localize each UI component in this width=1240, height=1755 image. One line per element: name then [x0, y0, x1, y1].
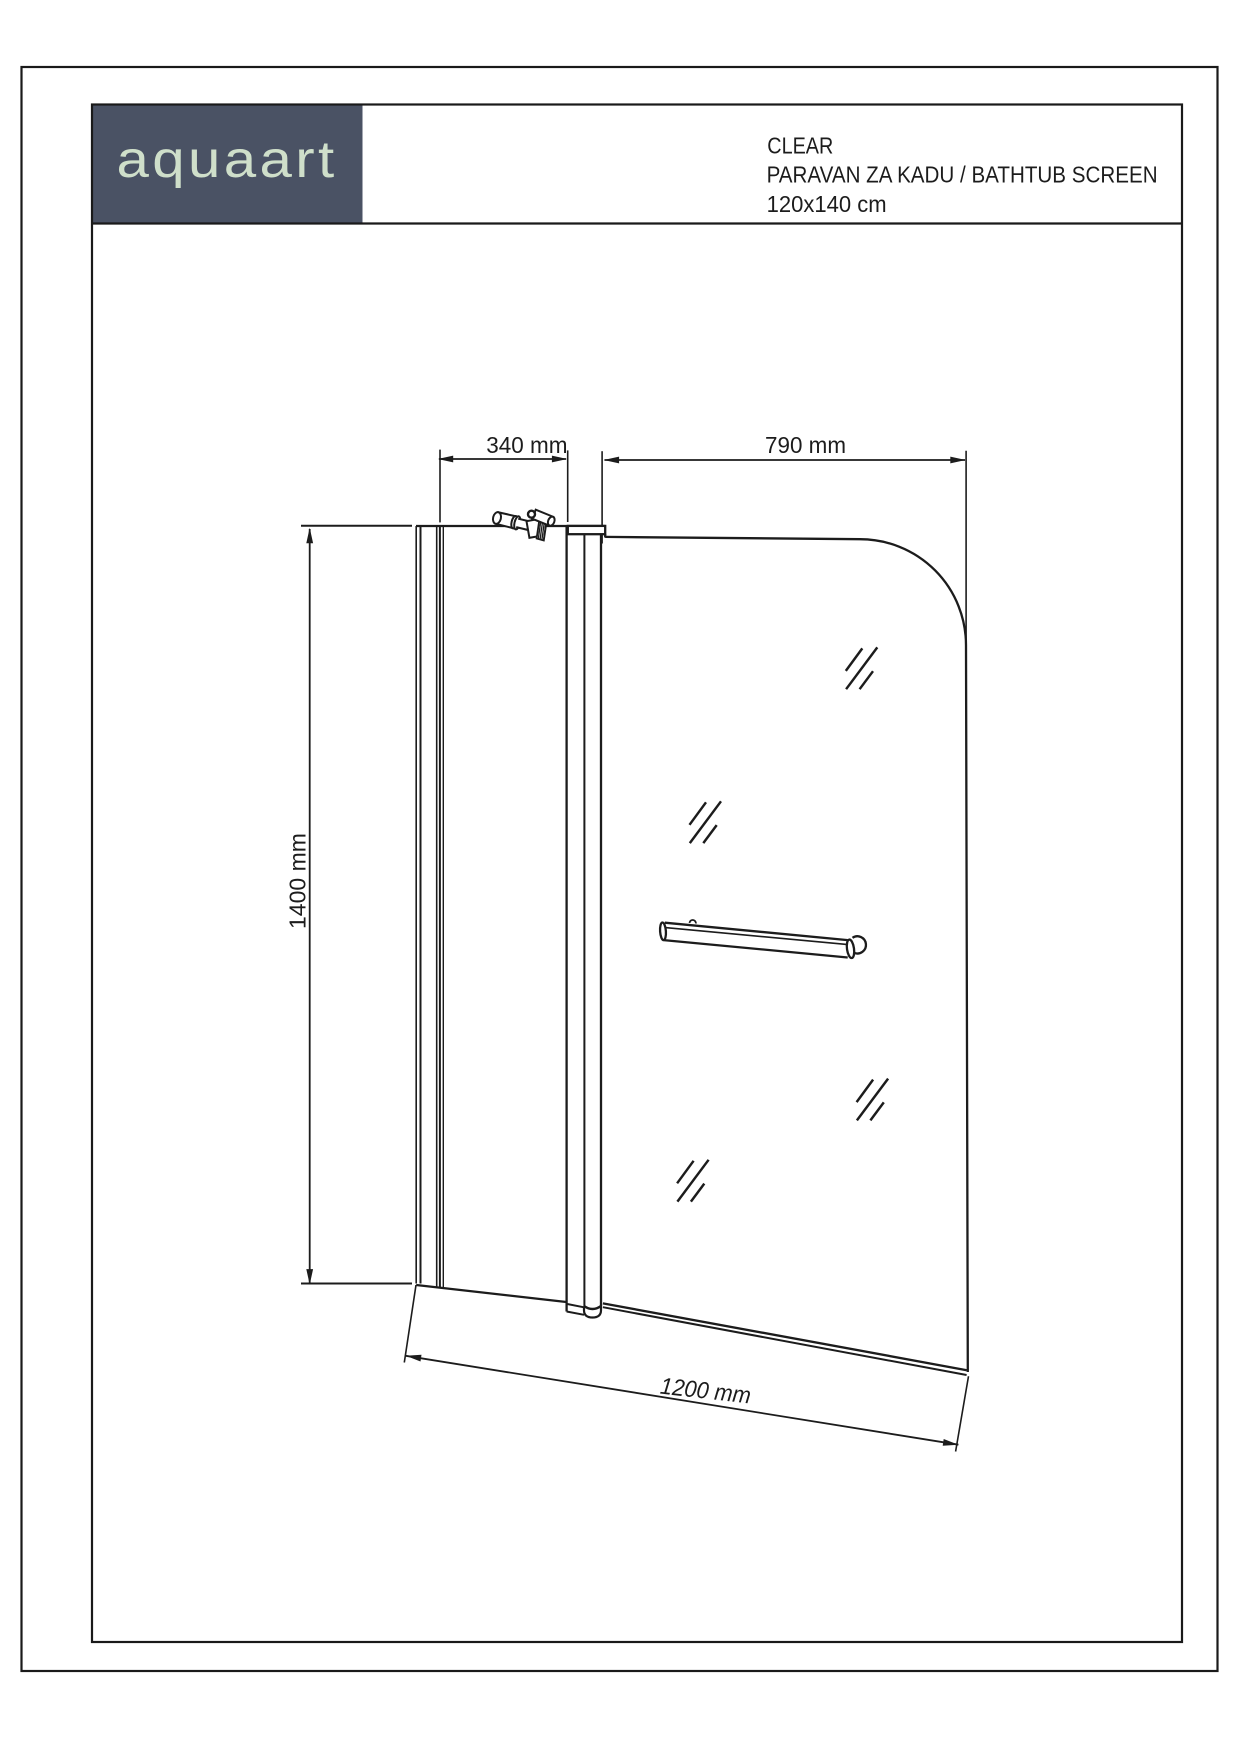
svg-text:120x140 cm: 120x140 cm [767, 191, 887, 217]
svg-text:1400 mm: 1400 mm [285, 833, 311, 929]
svg-text:aquaart: aquaart [117, 131, 338, 189]
svg-text:PARAVAN ZA KADU / BATHTUB SCRE: PARAVAN ZA KADU / BATHTUB SCREEN [767, 162, 1158, 188]
svg-text:340 mm: 340 mm [486, 432, 567, 458]
svg-text:CLEAR: CLEAR [767, 132, 833, 158]
svg-text:790 mm: 790 mm [765, 432, 846, 458]
